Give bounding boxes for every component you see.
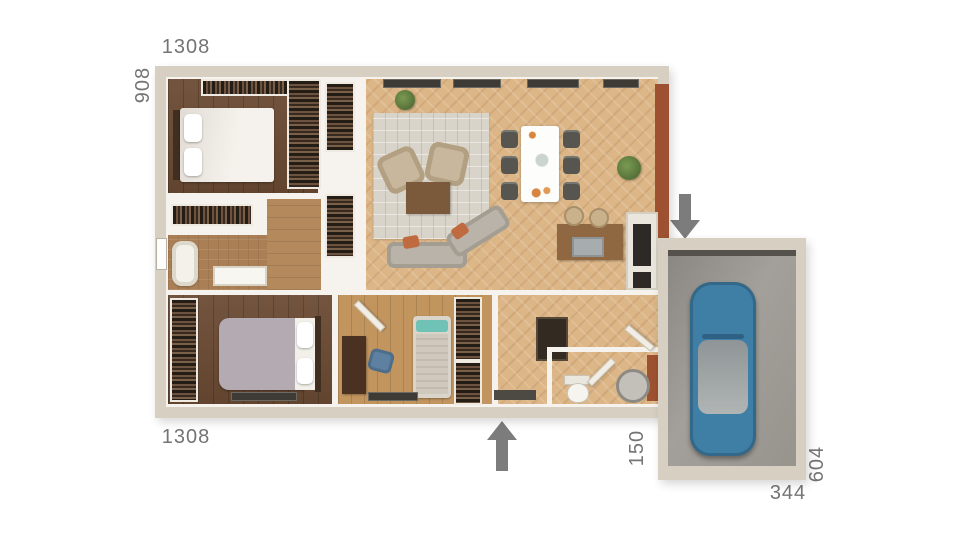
dimension-top-width: 1308 — [156, 36, 216, 59]
master-pillow-1 — [184, 114, 202, 142]
bathroom-vanity — [213, 266, 267, 286]
house-outline — [155, 66, 669, 418]
dining-chair-1 — [501, 130, 518, 148]
coffee-table — [406, 182, 450, 214]
master-bedroom — [168, 79, 318, 193]
utility-accent-wall — [647, 355, 658, 401]
entry-arrow-shaft — [496, 440, 508, 471]
dimension-bottom-width: 1308 — [156, 426, 216, 449]
garage-arrow-head — [670, 220, 700, 239]
window-living-4 — [603, 79, 639, 88]
bedroom-2-pillow-2 — [297, 358, 313, 384]
floor-plan: 1308 908 1308 150 604 344 — [0, 0, 960, 540]
bedroom-3-wardrobe-top — [454, 297, 482, 361]
bedroom-2-headboard — [315, 316, 321, 392]
car-windshield-line — [702, 334, 744, 339]
garage-arrow-shaft — [679, 194, 691, 220]
plant-2 — [617, 156, 641, 180]
bar-stool-2 — [589, 208, 609, 228]
hall-closet-bottom — [325, 194, 355, 258]
bedroom-3-wardrobe-bottom — [454, 361, 482, 405]
single-bed-duvet — [416, 334, 448, 394]
plant-1 — [395, 90, 415, 110]
washing-machine — [616, 369, 650, 403]
bedroom-2-window — [231, 392, 297, 401]
wc-wall-vertical — [547, 347, 552, 404]
wc-door — [587, 358, 616, 387]
wc-wall-horizontal — [547, 347, 658, 352]
bedroom-3-window — [368, 392, 418, 401]
dimension-garage-height: 604 — [806, 442, 826, 486]
dining-chair-2 — [501, 156, 518, 174]
bedroom-3-door — [354, 300, 386, 332]
fridge-appliance — [633, 272, 651, 288]
dining-chair-5 — [563, 156, 580, 174]
dimension-left-height: 908 — [132, 63, 152, 107]
bathroom-window — [156, 238, 167, 270]
car-roof-glass — [698, 340, 748, 414]
master-bed-headboard — [173, 110, 180, 180]
entry-arrow-head — [487, 421, 517, 440]
bar-stool-1 — [564, 206, 584, 226]
house-interior — [166, 77, 658, 407]
kitchen-sink — [572, 237, 604, 257]
dressing-rack — [171, 204, 253, 226]
window-living-2 — [453, 79, 501, 88]
master-wardrobe — [287, 79, 321, 189]
entry-hall — [498, 295, 658, 404]
bedroom-3 — [338, 295, 492, 404]
window-living-1 — [383, 79, 441, 88]
dimension-entry-offset: 150 — [626, 426, 646, 470]
garage-door — [668, 250, 796, 256]
desk-chair — [367, 347, 396, 374]
dining-chair-4 — [563, 130, 580, 148]
master-shelf-rack — [201, 79, 289, 96]
dining-chair-3 — [501, 182, 518, 200]
hall-closet-top — [325, 82, 355, 152]
bedroom-2-duvet — [219, 318, 305, 390]
shoe-cabinet — [536, 317, 568, 361]
main-entry-arrow-icon — [487, 421, 517, 471]
car — [690, 282, 756, 456]
bedroom-2-pillow-1 — [297, 322, 313, 348]
bathtub — [172, 241, 198, 286]
garage-entry-arrow-icon — [670, 194, 700, 239]
single-bed-pillow — [416, 320, 448, 332]
dimension-garage-width: 344 — [766, 482, 810, 505]
bedroom-2 — [168, 295, 332, 404]
desk — [342, 336, 366, 394]
armchair-2 — [423, 140, 470, 187]
master-pillow-2 — [184, 148, 202, 176]
window-living-3 — [527, 79, 579, 88]
bedroom-2-wardrobe — [170, 298, 198, 402]
hallway — [267, 199, 321, 290]
living-room — [366, 79, 658, 290]
toilet-bowl — [567, 383, 589, 403]
garage — [658, 238, 806, 480]
entry-door-mat — [494, 390, 536, 400]
dining-chair-6 — [563, 182, 580, 200]
dining-table — [521, 126, 559, 202]
oven-appliance — [633, 224, 651, 266]
